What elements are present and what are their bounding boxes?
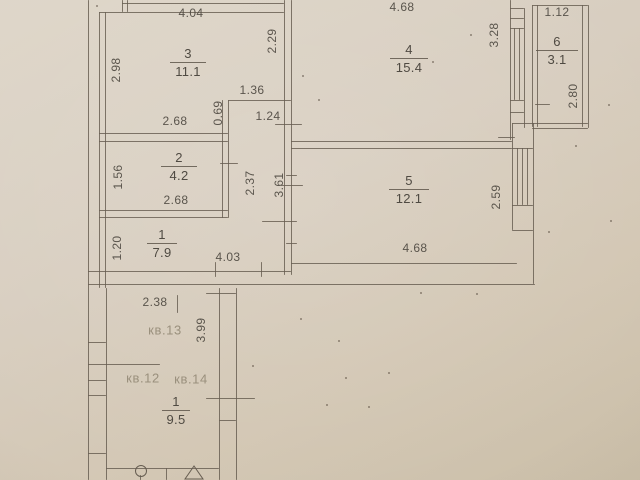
wall-line (517, 148, 518, 205)
wall-line (512, 205, 533, 206)
wall-line (537, 5, 538, 127)
scan-speck (338, 340, 340, 342)
dimension-label: 2.37 (243, 171, 257, 196)
room-number: 1 (172, 395, 180, 408)
wall-line (535, 104, 550, 105)
wall-line (284, 0, 285, 275)
room-fraction-line (389, 189, 429, 190)
dimension-label: 2.38 (143, 295, 168, 309)
wall-line (88, 0, 89, 480)
dimension-label: 3.28 (487, 23, 501, 48)
wall-line (88, 380, 106, 381)
room-number: 5 (405, 174, 413, 187)
wall-line (291, 263, 517, 264)
wall-line (261, 262, 262, 277)
wall-line (106, 288, 107, 480)
wall-line (88, 271, 291, 272)
wall-line (291, 141, 512, 142)
wall-line (275, 124, 302, 125)
scan-speck (608, 104, 610, 106)
scan-speck (300, 318, 302, 320)
plumbing-triangle-icon (184, 465, 204, 480)
wall-line (514, 28, 515, 100)
scan-speck (432, 61, 434, 63)
wall-line (524, 8, 525, 128)
wall-line (510, 0, 511, 140)
scan-speck (368, 406, 370, 408)
room-area: 15.4 (396, 61, 423, 74)
wall-line (206, 293, 236, 294)
dimension-label: 3.99 (194, 318, 208, 343)
dimension-label: 2.98 (109, 58, 123, 83)
room-area: 12.1 (396, 192, 423, 205)
dimension-label: 3.61 (272, 173, 286, 198)
dimension-label: 4.68 (390, 0, 415, 14)
wall-line (219, 420, 236, 421)
room-area: 3.1 (548, 53, 567, 66)
wall-line (262, 221, 297, 222)
room-label: 24.2 (161, 151, 197, 182)
wall-line (512, 148, 533, 149)
wall-line (498, 137, 515, 138)
wall-line (286, 175, 297, 176)
scan-speck (575, 145, 577, 147)
scan-speck (318, 99, 320, 101)
wall-line (122, 3, 284, 4)
wall-line (228, 100, 291, 101)
wall-line (99, 141, 228, 142)
wall-line (512, 123, 588, 124)
apartment-unit-label: кв.14 (174, 372, 208, 387)
floor-plan-page: 4.044.681.122.681.361.242.684.034.682.38… (0, 0, 640, 480)
dimension-label: 2.68 (164, 193, 189, 207)
dimension-label: 1.24 (256, 109, 281, 123)
room-fraction-line (390, 58, 428, 59)
scan-speck (470, 34, 472, 36)
dimension-label: 1.56 (111, 165, 125, 190)
wall-line (88, 453, 106, 454)
room-area: 9.5 (167, 413, 186, 426)
scan-speck (610, 220, 612, 222)
room-area: 11.1 (175, 65, 201, 78)
scan-speck (345, 377, 347, 379)
dimension-label: 2.59 (489, 185, 503, 210)
room-label: 19.5 (162, 395, 190, 426)
paper-vignette (0, 0, 640, 480)
wall-line (99, 133, 228, 134)
wall-line (228, 100, 229, 218)
room-area: 4.2 (170, 169, 189, 182)
wall-line (582, 5, 583, 127)
room-number: 3 (184, 47, 192, 60)
wall-line (588, 5, 589, 128)
dimension-label: 2.80 (566, 84, 580, 109)
scan-speck (548, 231, 550, 233)
wall-line (532, 128, 588, 129)
dimension-label: 0.69 (211, 101, 225, 126)
wall-line (206, 398, 255, 399)
scan-speck (96, 5, 98, 7)
wall-line (88, 395, 106, 396)
dimension-label: 4.68 (403, 241, 428, 255)
apartment-unit-label: кв.12 (126, 371, 160, 386)
wall-line (220, 163, 238, 164)
wall-line (236, 288, 237, 480)
wall-line (99, 217, 228, 218)
room-fraction-line (536, 50, 578, 51)
room-label: 17.9 (147, 228, 177, 259)
dimension-label: 4.03 (216, 250, 241, 264)
dimension-label: 1.20 (110, 236, 124, 261)
wall-line (88, 284, 535, 285)
room-label: 63.1 (536, 35, 578, 66)
scan-speck (476, 293, 478, 295)
wall-line (219, 288, 220, 480)
wall-line (510, 18, 524, 19)
wall-line (510, 8, 524, 9)
wall-line (88, 342, 106, 343)
room-number: 4 (405, 43, 413, 56)
scan-speck (252, 365, 254, 367)
wall-line (533, 123, 534, 284)
wall-line (291, 0, 292, 275)
wall-line (286, 243, 297, 244)
wall-line (519, 28, 520, 100)
wall-line (88, 364, 160, 365)
room-fraction-line (170, 62, 206, 63)
scan-speck (420, 292, 422, 294)
wall-line (166, 468, 167, 480)
wall-line (127, 0, 128, 12)
room-number: 1 (158, 228, 166, 241)
wall-line (527, 148, 528, 205)
apartment-unit-label: кв.13 (148, 323, 182, 338)
wall-line (512, 123, 513, 230)
room-area: 7.9 (153, 246, 172, 259)
wall-line (291, 148, 512, 149)
dimension-label: 2.29 (265, 29, 279, 54)
wall-line (99, 210, 228, 211)
room-fraction-line (162, 410, 190, 411)
room-label: 415.4 (390, 43, 428, 74)
room-number: 2 (175, 151, 183, 164)
wall-line (215, 262, 216, 277)
room-label: 512.1 (389, 174, 429, 205)
scan-speck (388, 372, 390, 374)
room-fraction-line (161, 166, 197, 167)
wall-line (510, 28, 524, 29)
dimension-label: 2.68 (163, 114, 188, 128)
wall-line (512, 230, 533, 231)
wall-line (105, 12, 106, 288)
wall-line (122, 0, 123, 12)
wall-line (99, 12, 100, 288)
room-fraction-line (147, 243, 177, 244)
room-label: 311.1 (170, 47, 206, 78)
wall-line (177, 295, 178, 313)
dimension-label: 1.36 (240, 83, 265, 97)
scan-speck (302, 75, 304, 77)
dimension-label: 1.12 (545, 5, 570, 19)
dimension-label: 4.04 (179, 6, 204, 20)
plumbing-circle-icon (135, 465, 147, 477)
scan-speck (326, 404, 328, 406)
wall-line (522, 148, 523, 205)
wall-line (532, 5, 533, 127)
wall-line (510, 100, 524, 101)
room-number: 6 (553, 35, 561, 48)
wall-line (510, 112, 524, 113)
